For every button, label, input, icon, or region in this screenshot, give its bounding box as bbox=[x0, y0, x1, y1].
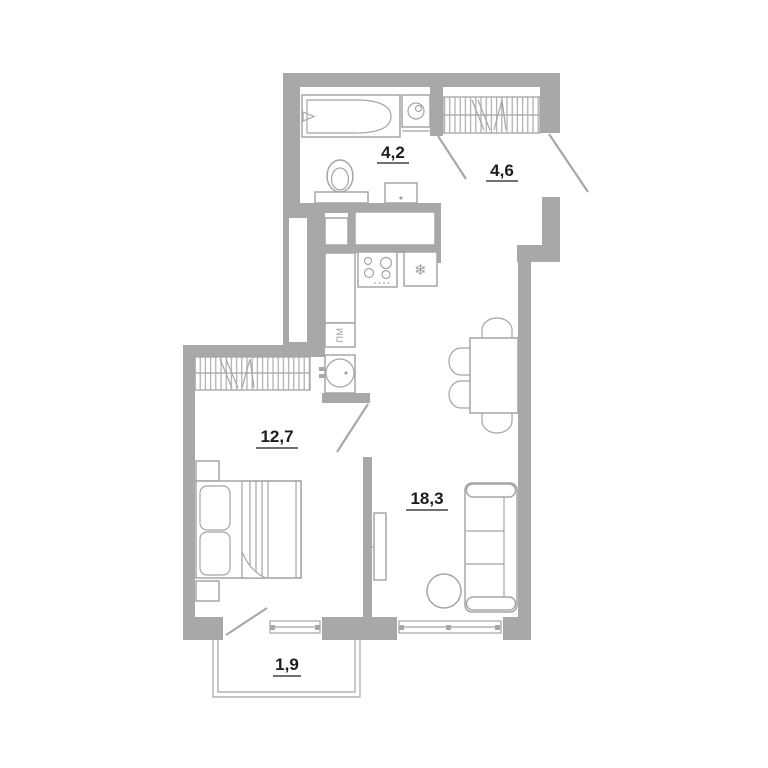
kitchen-counter-top bbox=[355, 212, 435, 245]
wall-bedroom-top bbox=[183, 345, 310, 357]
wardrobe-icon bbox=[195, 357, 310, 390]
wall-entry-block bbox=[542, 197, 560, 247]
living-room: 18,3 bbox=[365, 318, 518, 633]
dining-table-icon bbox=[449, 318, 518, 433]
stove-icon bbox=[358, 252, 397, 287]
wall-right bbox=[518, 262, 531, 640]
fridge-icon: ❄ bbox=[404, 252, 437, 286]
washbasin-icon bbox=[385, 183, 417, 203]
toilet-icon bbox=[315, 160, 368, 203]
chair-icon bbox=[482, 412, 512, 433]
bathroom: 4,2 bbox=[302, 95, 430, 203]
dishwasher-icon: ПМ bbox=[325, 323, 355, 347]
wall-bath-hall-divider bbox=[430, 87, 443, 136]
bedroom-area-label: 12,7 bbox=[260, 427, 293, 446]
balcony-area-label: 1,9 bbox=[275, 655, 299, 674]
entrance-door-leaf-icon bbox=[549, 134, 588, 192]
chair-icon bbox=[482, 318, 512, 339]
living-area-label: 18,3 bbox=[410, 489, 443, 508]
kitchen: ❄ ПМ bbox=[319, 212, 437, 393]
wall-partition bbox=[363, 457, 372, 617]
wall-bottom-1 bbox=[183, 617, 223, 640]
balcony-door-leaf-icon bbox=[226, 608, 267, 635]
floor-plan: 4,2 4,6 bbox=[0, 0, 768, 768]
wall-bottom-2 bbox=[322, 617, 397, 640]
wall-bedroom-left bbox=[183, 345, 195, 640]
kitchen-counter-niche bbox=[325, 218, 348, 245]
bathroom-area-label: 4,2 bbox=[381, 143, 405, 162]
window-icon bbox=[270, 621, 320, 633]
hallway: 4,6 bbox=[438, 97, 588, 192]
hallway-area-label: 4,6 bbox=[490, 161, 514, 180]
wall-step bbox=[517, 245, 560, 262]
chair-icon bbox=[449, 381, 471, 408]
dishwasher-label: ПМ bbox=[335, 328, 345, 343]
bathroom-door-leaf-icon bbox=[438, 136, 466, 179]
kitchen-sink-icon bbox=[319, 355, 355, 393]
snowflake-icon: ❄ bbox=[414, 261, 427, 279]
sofa-icon bbox=[465, 483, 517, 612]
wall-kitchen-column bbox=[348, 212, 355, 245]
washing-machine-icon bbox=[402, 95, 430, 131]
wardrobe-icon bbox=[443, 97, 540, 133]
balcony: 1,9 bbox=[213, 640, 360, 697]
bedroom-door-leaf-icon bbox=[337, 404, 368, 452]
wall-door-stub bbox=[322, 393, 370, 403]
wall-right-upper bbox=[540, 87, 560, 133]
nightstand-icon bbox=[196, 581, 219, 601]
bathtub-icon bbox=[302, 95, 400, 137]
nightstand-icon bbox=[196, 461, 219, 481]
bed-icon bbox=[196, 481, 301, 578]
vent-shaft bbox=[289, 218, 307, 342]
pouf-icon bbox=[427, 574, 461, 608]
chair-icon bbox=[449, 348, 471, 375]
window-icon bbox=[399, 621, 501, 633]
wall-top bbox=[283, 73, 560, 87]
wall-bottom-3 bbox=[503, 617, 531, 640]
kitchen-counter-left bbox=[325, 253, 355, 323]
wall-left-upper bbox=[283, 87, 300, 203]
